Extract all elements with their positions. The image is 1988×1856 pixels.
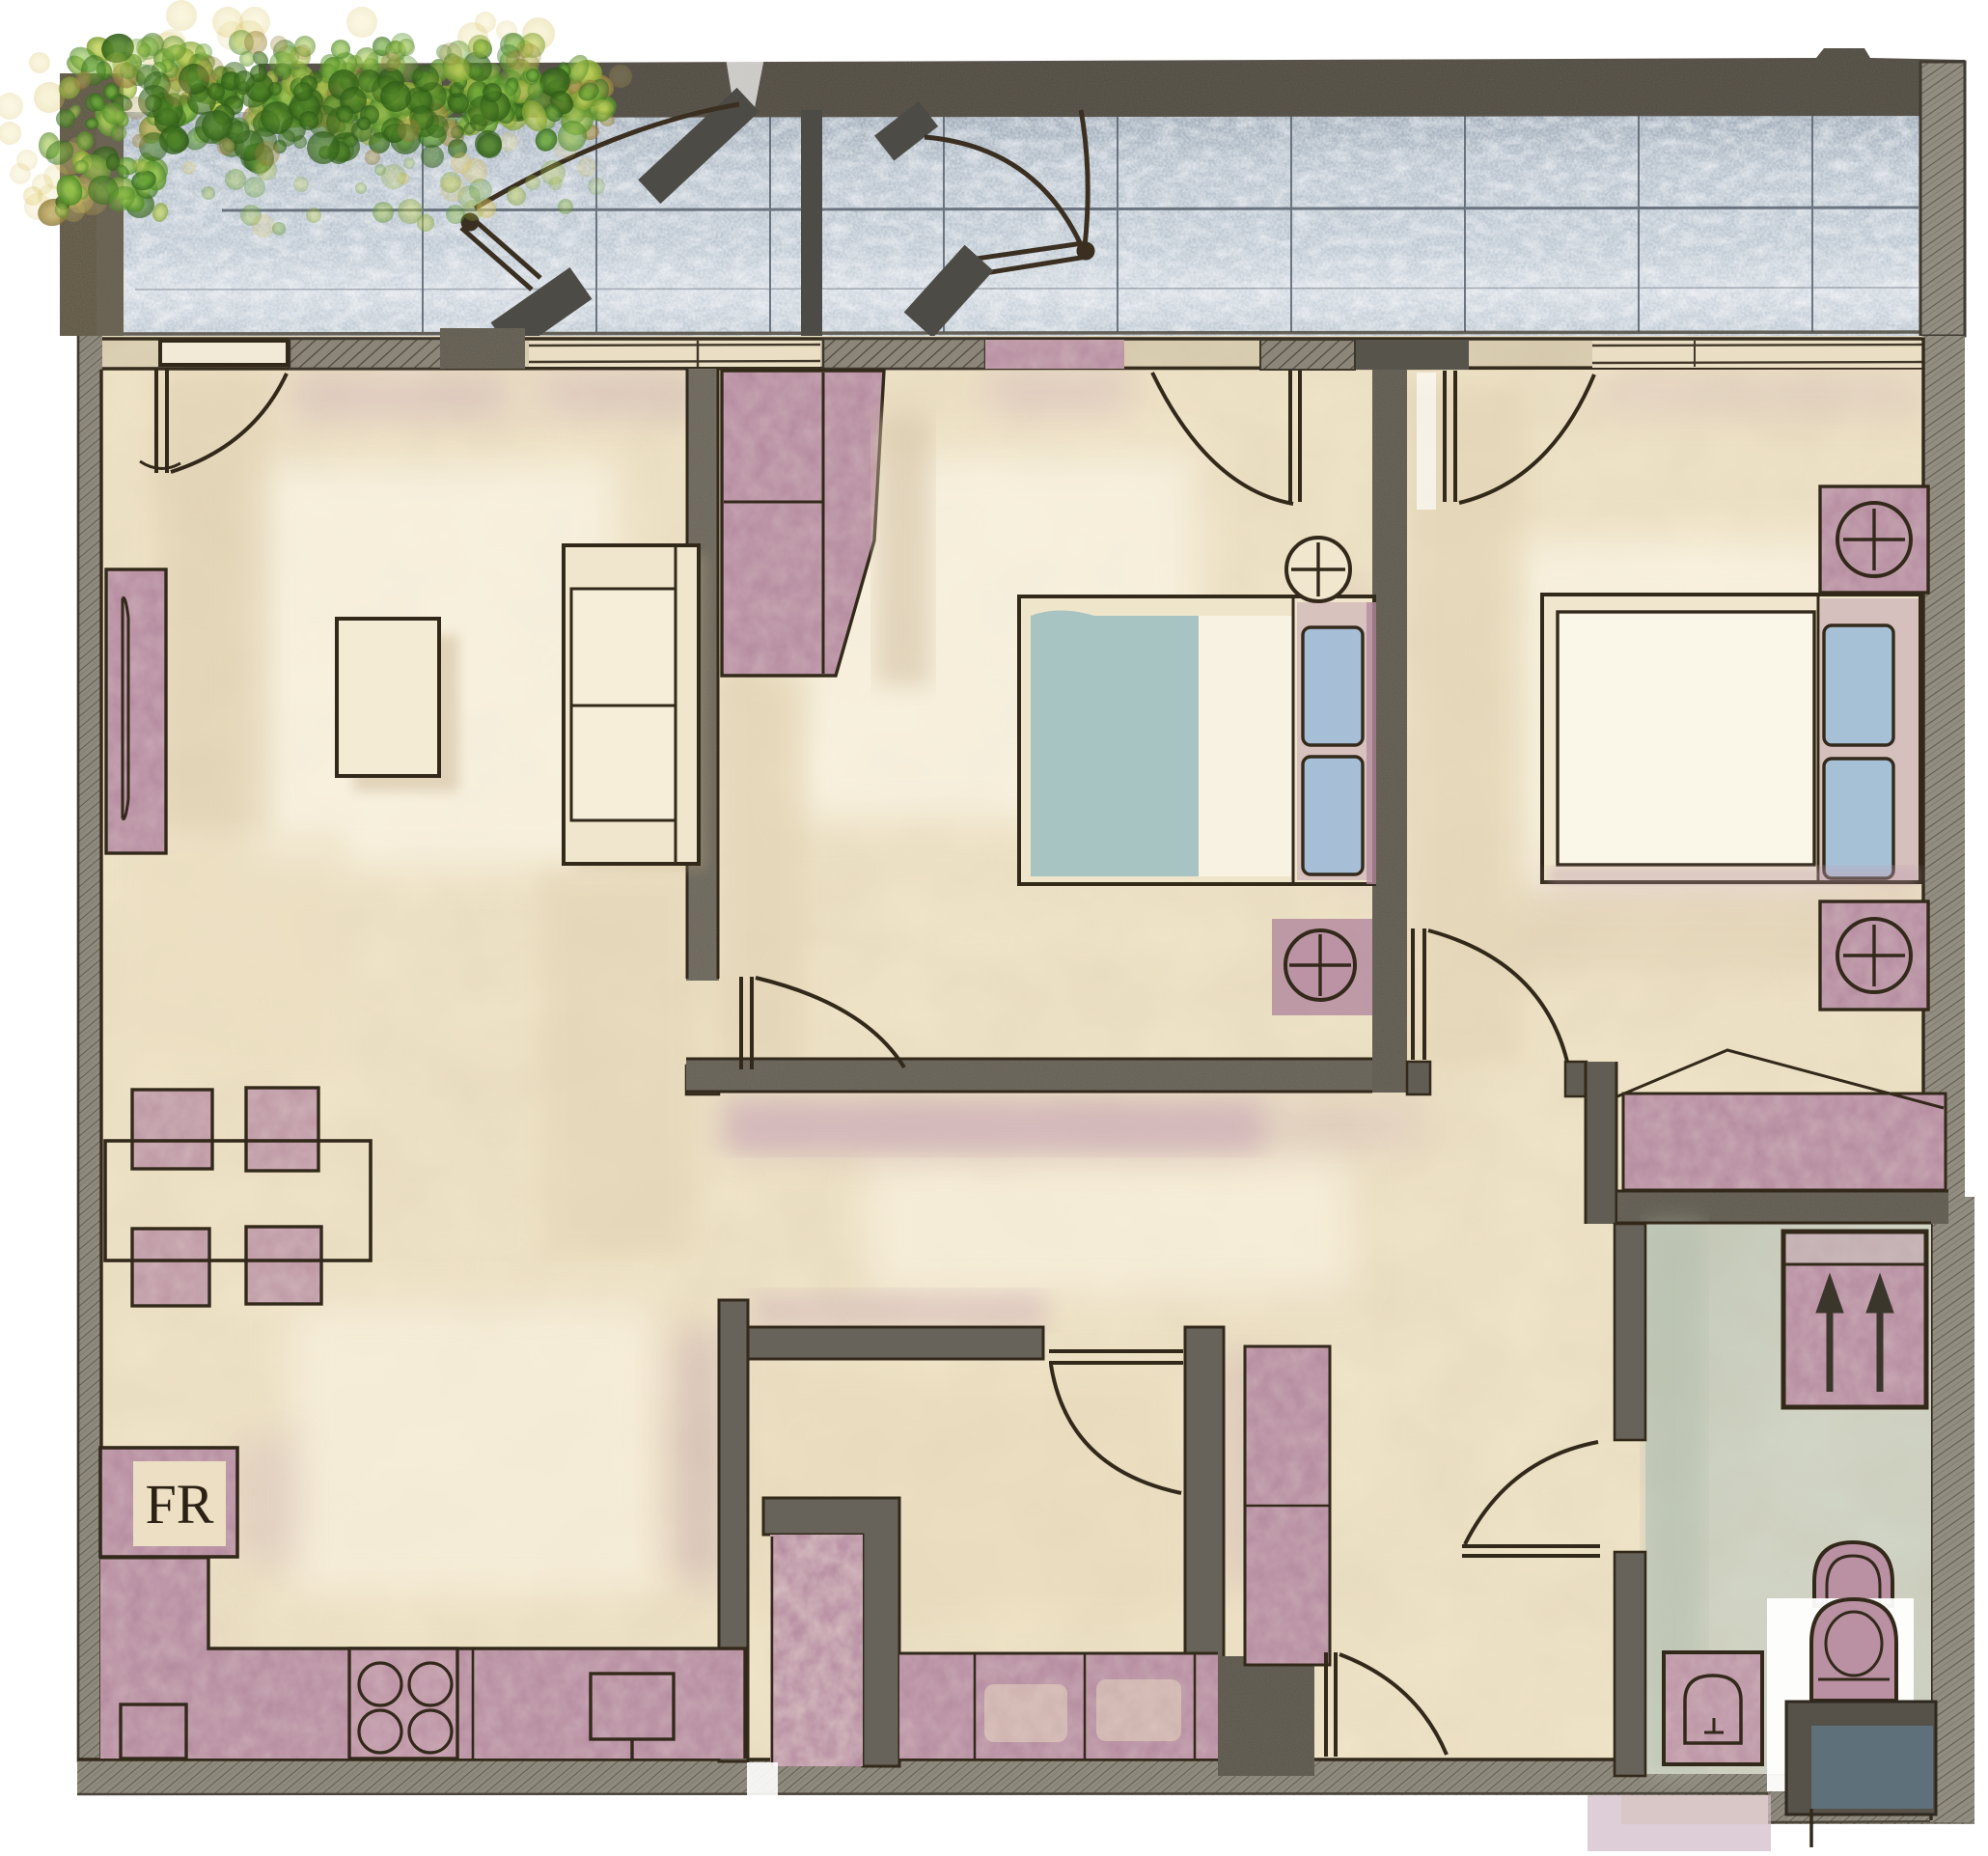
svg-text:FR: FR xyxy=(146,1473,214,1536)
